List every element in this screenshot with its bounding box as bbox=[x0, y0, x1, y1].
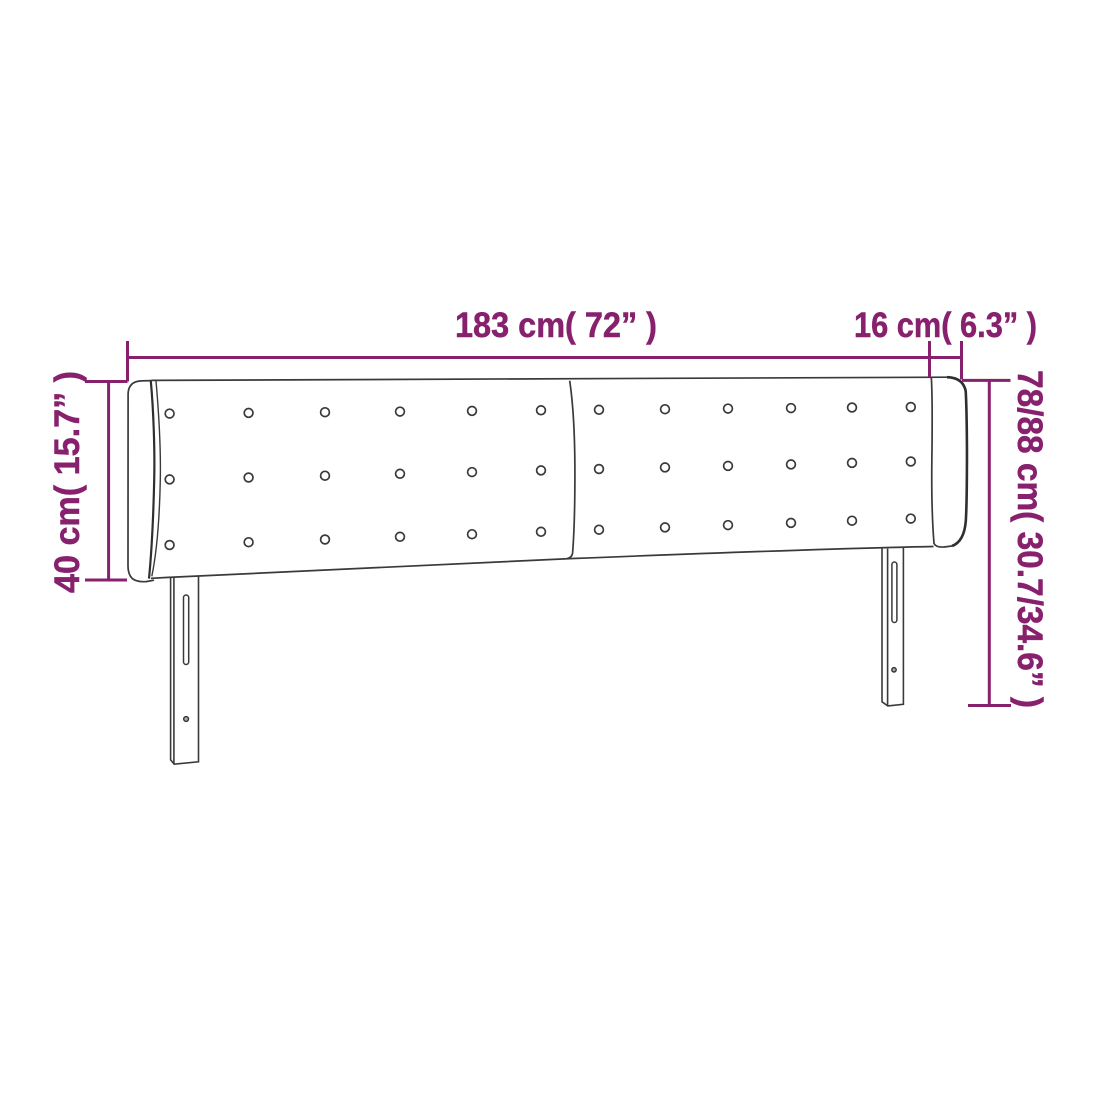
svg-text:78/88 cm( 30.7/34.6” ): 78/88 cm( 30.7/34.6” ) bbox=[1010, 370, 1049, 708]
svg-text:40 cm( 15.7” ): 40 cm( 15.7” ) bbox=[48, 371, 87, 593]
svg-text:183 cm( 72” ): 183 cm( 72” ) bbox=[455, 306, 657, 345]
svg-text:16 cm( 6.3” ): 16 cm( 6.3” ) bbox=[854, 306, 1037, 345]
